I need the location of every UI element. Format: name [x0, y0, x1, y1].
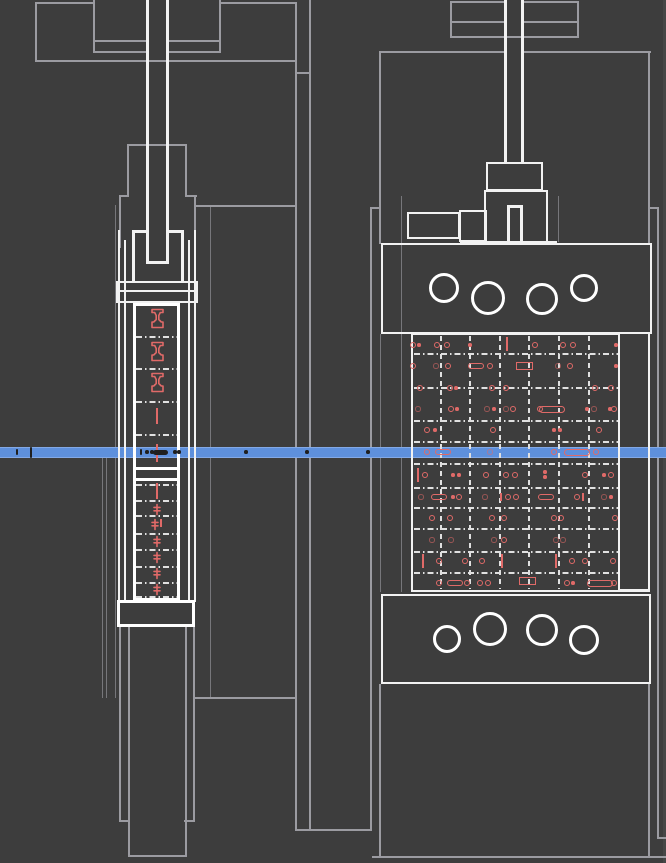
part-edge: [146, 261, 169, 264]
frame-line: [648, 51, 650, 244]
slot-mark: [587, 580, 613, 587]
frame-line: [184, 820, 195, 822]
frame-line: [93, 40, 146, 42]
frame-line: [379, 684, 381, 858]
frame-line: [379, 51, 507, 53]
hole-mark-faint: [560, 537, 566, 543]
frame-line: [370, 207, 381, 209]
point-mark: [451, 473, 455, 477]
snap-point-mark: [244, 450, 248, 454]
point-mark: [451, 495, 455, 499]
hole-mark-faint: [418, 494, 424, 500]
point-mark: [571, 581, 575, 585]
point-mark: [609, 495, 613, 499]
hole-mark: [424, 427, 430, 433]
hole-mark: [532, 342, 538, 348]
fastener-symbol: [153, 584, 161, 595]
ibeam-profile-symbol: [150, 341, 165, 362]
hole-mark-faint: [503, 406, 509, 412]
frame-line: [106, 458, 107, 698]
frame-line: [370, 207, 372, 831]
point-mark: [468, 343, 472, 347]
slot-mark: [539, 406, 565, 413]
snap-point-mark: [366, 450, 370, 454]
bolt-hole-circle: [433, 625, 461, 653]
point-mark: [454, 386, 458, 390]
hole-mark: [558, 515, 564, 521]
hole-mark: [567, 363, 573, 369]
part-outline-rect: [459, 210, 487, 242]
hole-mark: [510, 406, 516, 412]
frame-line: [450, 21, 506, 23]
hole-mark: [608, 385, 614, 391]
hole-mark: [551, 515, 557, 521]
hole-mark-faint: [601, 494, 607, 500]
hole-mark: [612, 515, 618, 521]
frame-line: [295, 829, 372, 831]
pocket-mark: [516, 362, 533, 370]
hole-mark: [503, 385, 509, 391]
part-edge: [521, 0, 524, 163]
hole-mark: [582, 558, 588, 564]
fastener-symbol: [153, 552, 161, 563]
hole-mark: [501, 537, 507, 543]
hole-mark-faint: [482, 494, 488, 500]
slot-mark: [431, 494, 447, 500]
hole-mark: [574, 494, 580, 500]
frame-line: [168, 51, 221, 53]
part-edge: [166, 0, 169, 263]
tick-mark: [160, 519, 162, 527]
part-edge: [132, 230, 149, 233]
hole-mark-faint: [448, 537, 454, 543]
hole-mark: [501, 515, 507, 521]
hole-mark: [610, 558, 616, 564]
frame-line: [220, 2, 297, 4]
hole-mark: [410, 342, 416, 348]
hole-mark: [436, 558, 442, 564]
hole-mark: [410, 363, 416, 369]
point-mark: [602, 473, 606, 477]
cad-canvas[interactable]: [0, 0, 666, 863]
bolt-hole-circle: [429, 273, 459, 303]
hole-mark: [447, 385, 453, 391]
part-outline-rect: [116, 281, 198, 303]
frame-line: [35, 2, 37, 62]
frame-line: [309, 0, 311, 831]
hole-mark-faint: [429, 537, 435, 543]
hole-mark: [436, 580, 442, 586]
point-mark: [543, 475, 547, 479]
hole-mark-faint: [433, 363, 439, 369]
hole-mark: [485, 580, 491, 586]
bolt-hole-circle: [570, 274, 598, 302]
part-outline-rect: [486, 162, 543, 191]
hole-mark-faint: [553, 537, 559, 543]
point-mark: [614, 343, 618, 347]
frame-line: [450, 1, 506, 3]
frame-line: [558, 196, 559, 242]
hole-mark: [513, 494, 519, 500]
hole-mark: [596, 427, 602, 433]
frame-line: [657, 207, 659, 838]
hole-mark: [444, 342, 450, 348]
bolt-hole-circle: [526, 614, 558, 646]
hole-mark: [448, 406, 454, 412]
tick-mark: [500, 493, 502, 501]
fastener-symbol: [151, 519, 159, 530]
hole-mark: [570, 342, 576, 348]
bolt-hole-circle: [471, 281, 505, 315]
hole-mark: [434, 342, 440, 348]
point-mark: [552, 428, 556, 432]
hole-mark: [479, 558, 485, 564]
point-mark: [455, 407, 459, 411]
pocket-mark: [519, 577, 536, 585]
hole-mark: [505, 494, 511, 500]
hole-mark: [551, 449, 557, 455]
ibeam-profile-symbol: [150, 308, 165, 329]
hole-mark-faint: [484, 406, 490, 412]
tick-mark: [417, 468, 420, 482]
bolt-hole-circle: [526, 283, 558, 315]
part-edge: [620, 589, 650, 592]
frame-line: [93, 0, 95, 53]
point-mark: [558, 428, 562, 432]
snap-point-mark: [16, 449, 18, 455]
frame-line: [185, 627, 187, 857]
hole-mark: [462, 558, 468, 564]
frame-line: [119, 820, 130, 822]
point-mark: [457, 473, 461, 477]
hole-mark: [477, 580, 483, 586]
frame-line: [219, 0, 221, 53]
frame-line: [379, 51, 381, 244]
frame-line: [372, 856, 666, 858]
snap-point-mark: [173, 450, 177, 454]
hole-mark: [464, 580, 470, 586]
part-edge: [504, 0, 507, 163]
frame-line: [127, 144, 129, 197]
ibeam-profile-symbol: [150, 372, 165, 393]
point-mark: [543, 470, 547, 474]
frame-line: [193, 627, 195, 822]
part-outline-rect: [117, 600, 195, 627]
hole-mark: [569, 558, 575, 564]
hole-mark: [424, 449, 430, 455]
frame-line: [522, 51, 651, 53]
hole-mark-faint: [555, 363, 561, 369]
frame-line: [35, 2, 93, 4]
snap-point-mark: [177, 450, 181, 454]
hole-mark: [483, 472, 489, 478]
tick-mark: [555, 554, 558, 568]
hole-mark: [611, 580, 617, 586]
hole-mark: [611, 406, 617, 412]
hole-mark: [447, 515, 453, 521]
hole-mark: [490, 427, 496, 433]
part-outline-rect: [411, 333, 620, 592]
hole-mark: [503, 472, 509, 478]
frame-line: [128, 627, 130, 857]
hole-mark: [489, 515, 495, 521]
fastener-symbol: [153, 504, 161, 515]
part-outline-rect: [381, 594, 651, 684]
slot-mark: [447, 580, 463, 586]
frame-line: [295, 2, 297, 831]
bolt-hole-circle: [569, 625, 599, 655]
part-edge: [132, 230, 135, 282]
point-mark: [585, 407, 589, 411]
hole-mark: [422, 472, 428, 478]
tick-mark: [501, 554, 504, 568]
point-mark: [614, 364, 618, 368]
tick-mark: [156, 483, 159, 499]
part-edge: [181, 230, 184, 282]
hole-mark: [593, 449, 599, 455]
frame-line: [185, 144, 187, 197]
hole-mark: [445, 363, 451, 369]
fastener-symbol: [153, 536, 161, 547]
part-edge: [146, 0, 149, 263]
snap-point-mark: [30, 447, 32, 458]
hole-mark: [456, 494, 462, 500]
snap-point-mark: [140, 449, 142, 455]
slot-mark: [435, 449, 451, 455]
frame-line: [648, 207, 659, 209]
hole-mark-faint: [487, 449, 493, 455]
frame-line: [657, 837, 666, 839]
hole-mark-faint: [491, 537, 497, 543]
part-edge: [648, 334, 650, 592]
tick-mark: [422, 554, 425, 568]
frame-line: [450, 1, 452, 38]
fastener-symbol: [153, 568, 161, 579]
bolt-hole-circle: [473, 612, 507, 646]
frame-line: [522, 21, 579, 23]
hole-mark: [592, 385, 598, 391]
tick-mark: [506, 337, 509, 351]
slot-mark: [564, 449, 590, 456]
hole-mark: [417, 385, 423, 391]
frame-line: [577, 1, 579, 38]
part-outline-rect: [484, 190, 548, 244]
part-outline-rect: [133, 467, 180, 481]
hole-mark: [487, 363, 493, 369]
slot-mark: [538, 494, 554, 500]
hole-mark-faint: [591, 406, 597, 412]
tick-mark: [582, 493, 584, 501]
frame-line: [119, 627, 121, 822]
point-mark: [492, 407, 496, 411]
hole-mark: [582, 472, 588, 478]
part-outline-rect: [407, 212, 460, 239]
slot-mark: [468, 363, 484, 369]
frame-line: [168, 40, 221, 42]
hole-mark: [512, 472, 518, 478]
frame-line: [380, 334, 381, 592]
snap-point-mark: [153, 450, 168, 455]
point-mark: [433, 428, 437, 432]
frame-line: [450, 36, 579, 38]
hole-mark: [560, 342, 566, 348]
hole-mark: [608, 472, 614, 478]
hole-mark: [489, 385, 495, 391]
frame-line: [295, 72, 311, 74]
frame-line: [522, 1, 579, 3]
tick-mark: [156, 408, 159, 424]
part-outline-rect: [381, 243, 652, 334]
point-mark: [417, 343, 421, 347]
snap-point-mark: [305, 450, 309, 454]
frame-line: [102, 458, 103, 698]
frame-line: [127, 144, 187, 146]
hole-mark: [429, 515, 435, 521]
hole-mark: [564, 580, 570, 586]
frame-line: [93, 51, 146, 53]
part-edge: [166, 230, 184, 233]
frame-line: [128, 855, 187, 857]
frame-line: [648, 684, 650, 858]
snap-point-mark: [145, 450, 149, 454]
hole-mark-faint: [415, 406, 421, 412]
